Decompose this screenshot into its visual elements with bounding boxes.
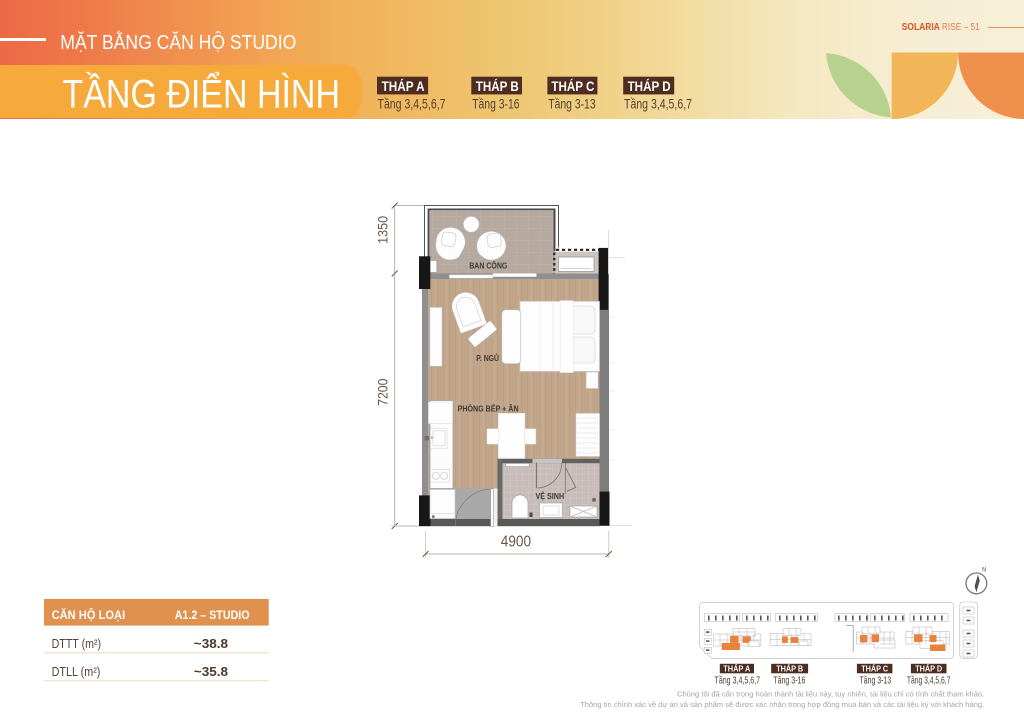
svg-text:~35.8: ~35.8 <box>194 664 228 679</box>
svg-text:A1.2 – STUDIO: A1.2 – STUDIO <box>175 608 250 622</box>
svg-text:DTLL (m²): DTLL (m²) <box>52 664 101 679</box>
svg-text:Thông tin chính xác về dự án v: Thông tin chính xác về dự án và sản phẩm… <box>580 700 984 709</box>
svg-text:Chúng tôi đã cẩn trọng hoàn th: Chúng tôi đã cẩn trọng hoàn thành tài li… <box>677 689 984 698</box>
svg-text:~38.8: ~38.8 <box>194 636 228 651</box>
svg-text:CĂN HỘ LOẠI: CĂN HỘ LOẠI <box>52 607 126 622</box>
svg-text:DTTT (m²): DTTT (m²) <box>52 636 102 651</box>
